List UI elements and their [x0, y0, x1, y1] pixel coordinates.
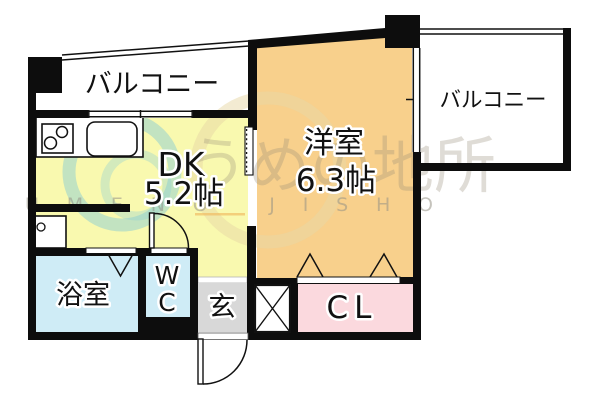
wall-bottom-left: [28, 332, 198, 340]
wall-dk-top-right: [193, 110, 248, 118]
western-room-size-label: 6.3帖: [296, 163, 376, 199]
floor-plan-drawing: うめの地所 UMENO JISHO: [0, 0, 600, 406]
wall-bath-wc-divider: [138, 248, 146, 332]
wall-closet-track-end: [400, 277, 413, 284]
pillar-top-right: [385, 15, 420, 48]
entrance-door: [198, 333, 248, 384]
wall-center-top: [248, 44, 257, 130]
wall-bottom-right: [247, 332, 421, 340]
closet-label: CL: [327, 290, 378, 326]
wall-balcony-right-bottom: [413, 163, 571, 171]
balcony-left-label: バルコニー: [85, 69, 219, 100]
wall-stub-washer: [28, 204, 130, 212]
pillar-top-left: [28, 57, 62, 93]
washing-machine-icon: [33, 216, 66, 248]
sliding-door-dk-western: [245, 127, 253, 175]
wall-shaft-right: [290, 278, 298, 340]
pipe-shaft-box: [255, 285, 290, 332]
western-room-label: 洋室: [304, 126, 364, 161]
entrance-step: [198, 277, 247, 283]
balcony-right-label: バルコニー: [439, 88, 546, 113]
sink-icon: [87, 122, 137, 156]
entrance-label: 玄: [209, 292, 236, 323]
balcony-left-railing: [62, 41, 249, 60]
wc-label-line2: C: [158, 288, 175, 317]
wc-label-line1: W: [155, 261, 180, 290]
wall-balcony-right-side: [563, 28, 571, 171]
stove-burner-icon: [57, 127, 68, 138]
dk-balcony-window: [88, 110, 193, 118]
wall-wc-entrance: [190, 248, 198, 340]
stove-burner-icon: [45, 137, 57, 149]
dk-size-label: 5.2帖: [144, 176, 224, 212]
wall-left: [28, 57, 36, 340]
washer-faucet-icon: [37, 223, 45, 231]
wall-right: [413, 150, 421, 340]
floor-plan: うめの地所 UMENO JISHO: [0, 0, 600, 406]
wall-dk-top-left: [36, 110, 88, 118]
watermark-underline: [195, 213, 245, 216]
bathroom-label: 浴室: [56, 280, 110, 311]
balcony-right-railing: [420, 29, 564, 34]
